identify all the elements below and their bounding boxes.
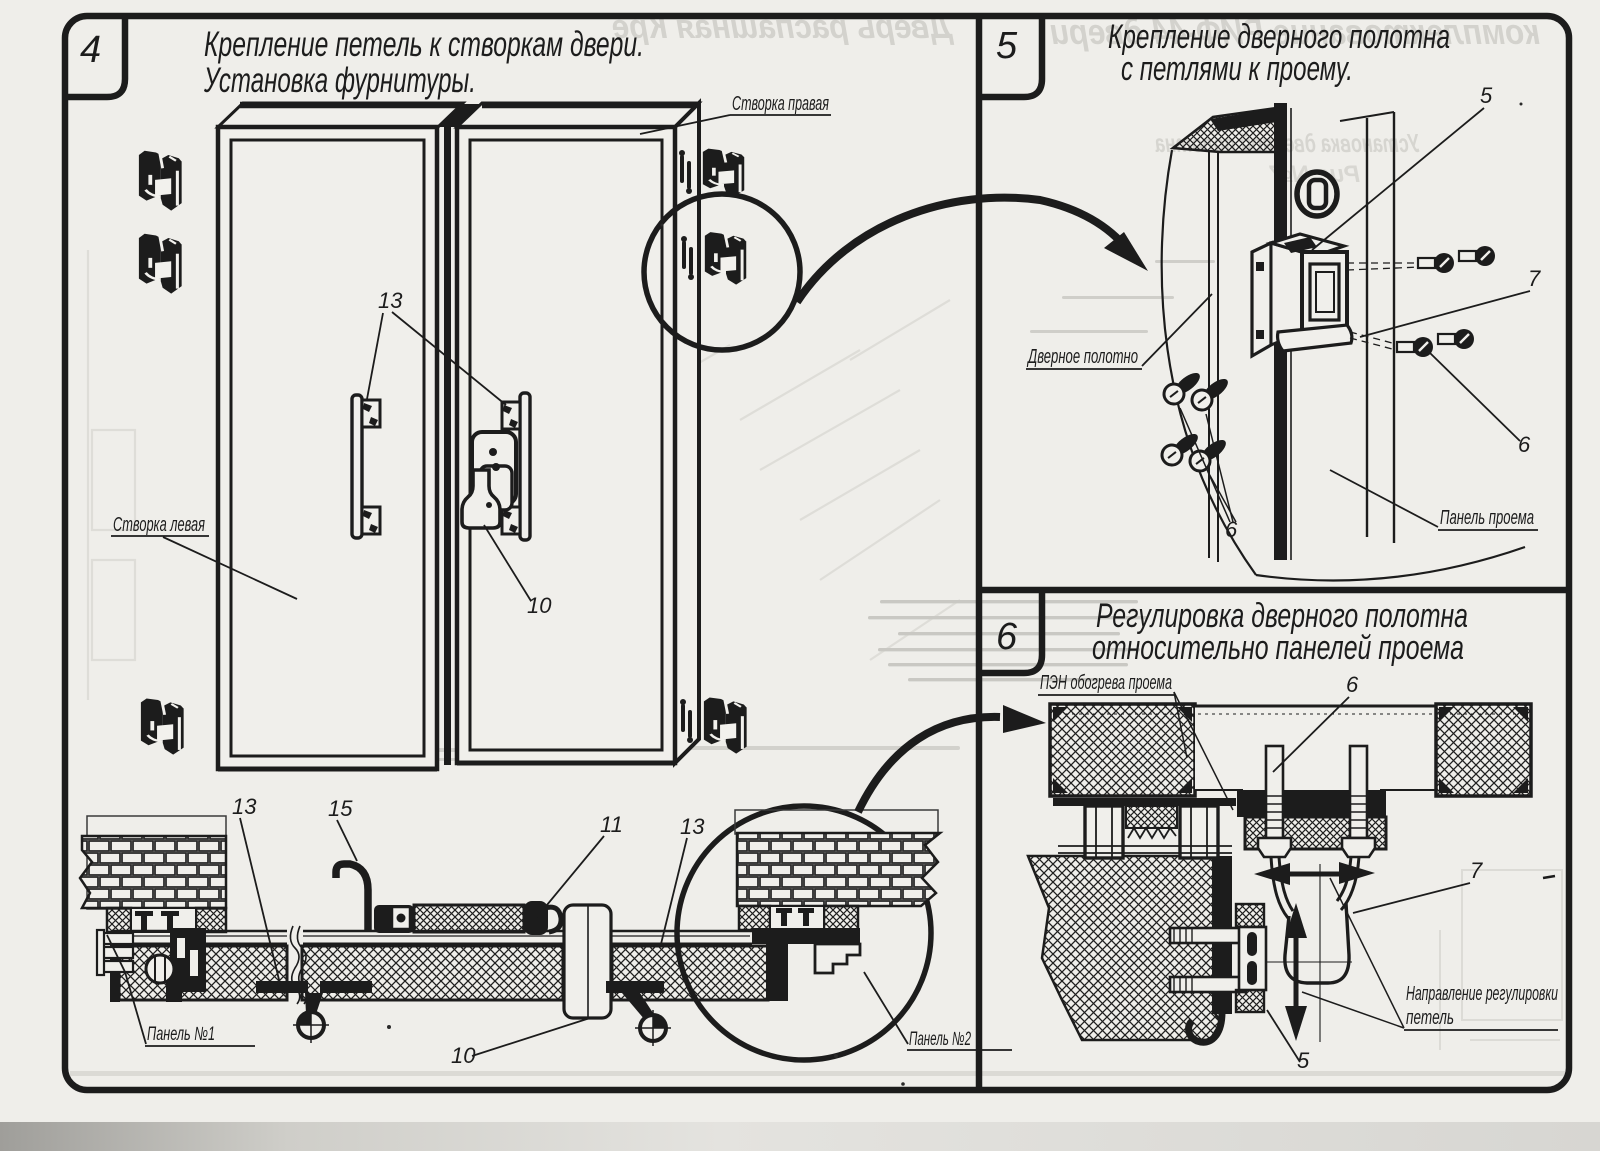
svg-text:6: 6: [1346, 672, 1359, 697]
svg-text:5: 5: [996, 25, 1018, 67]
svg-text:Створка левая: Створка левая: [113, 514, 205, 536]
svg-text:13: 13: [232, 794, 257, 819]
svg-text:5: 5: [1480, 83, 1493, 108]
svg-text:7: 7: [1528, 266, 1541, 291]
svg-text:13: 13: [378, 288, 403, 313]
svg-text:13: 13: [680, 814, 705, 839]
svg-text:Панель №2: Панель №2: [909, 1029, 971, 1050]
svg-text:6: 6: [996, 616, 1018, 658]
svg-text:Установка фурнитуры.: Установка фурнитуры.: [203, 61, 476, 100]
svg-text:с петлями к проему.: с петлями к проему.: [1121, 50, 1353, 88]
svg-text:Панель проема: Панель проема: [1440, 507, 1534, 529]
svg-text:4: 4: [80, 29, 101, 71]
svg-text:петель: петель: [1406, 1007, 1454, 1029]
svg-text:Дверное полотно: Дверное полотно: [1027, 346, 1138, 368]
svg-text:7: 7: [1470, 858, 1483, 883]
svg-text:15: 15: [328, 796, 353, 821]
svg-text:Крепление петель к створкам дв: Крепление петель к створкам двери.: [204, 25, 644, 64]
svg-text:Направление регулировки: Направление регулировки: [1406, 983, 1558, 1005]
svg-text:относительно панелей проема: относительно панелей проема: [1092, 629, 1464, 667]
svg-text:6: 6: [1518, 432, 1531, 457]
svg-text:ПЭН обогрева проема: ПЭН обогрева проема: [1040, 672, 1172, 694]
svg-text:Створка правая: Створка правая: [732, 93, 829, 115]
svg-text:11: 11: [600, 812, 623, 837]
svg-text:Панель №1: Панель №1: [147, 1024, 215, 1045]
svg-text:10: 10: [527, 593, 552, 618]
